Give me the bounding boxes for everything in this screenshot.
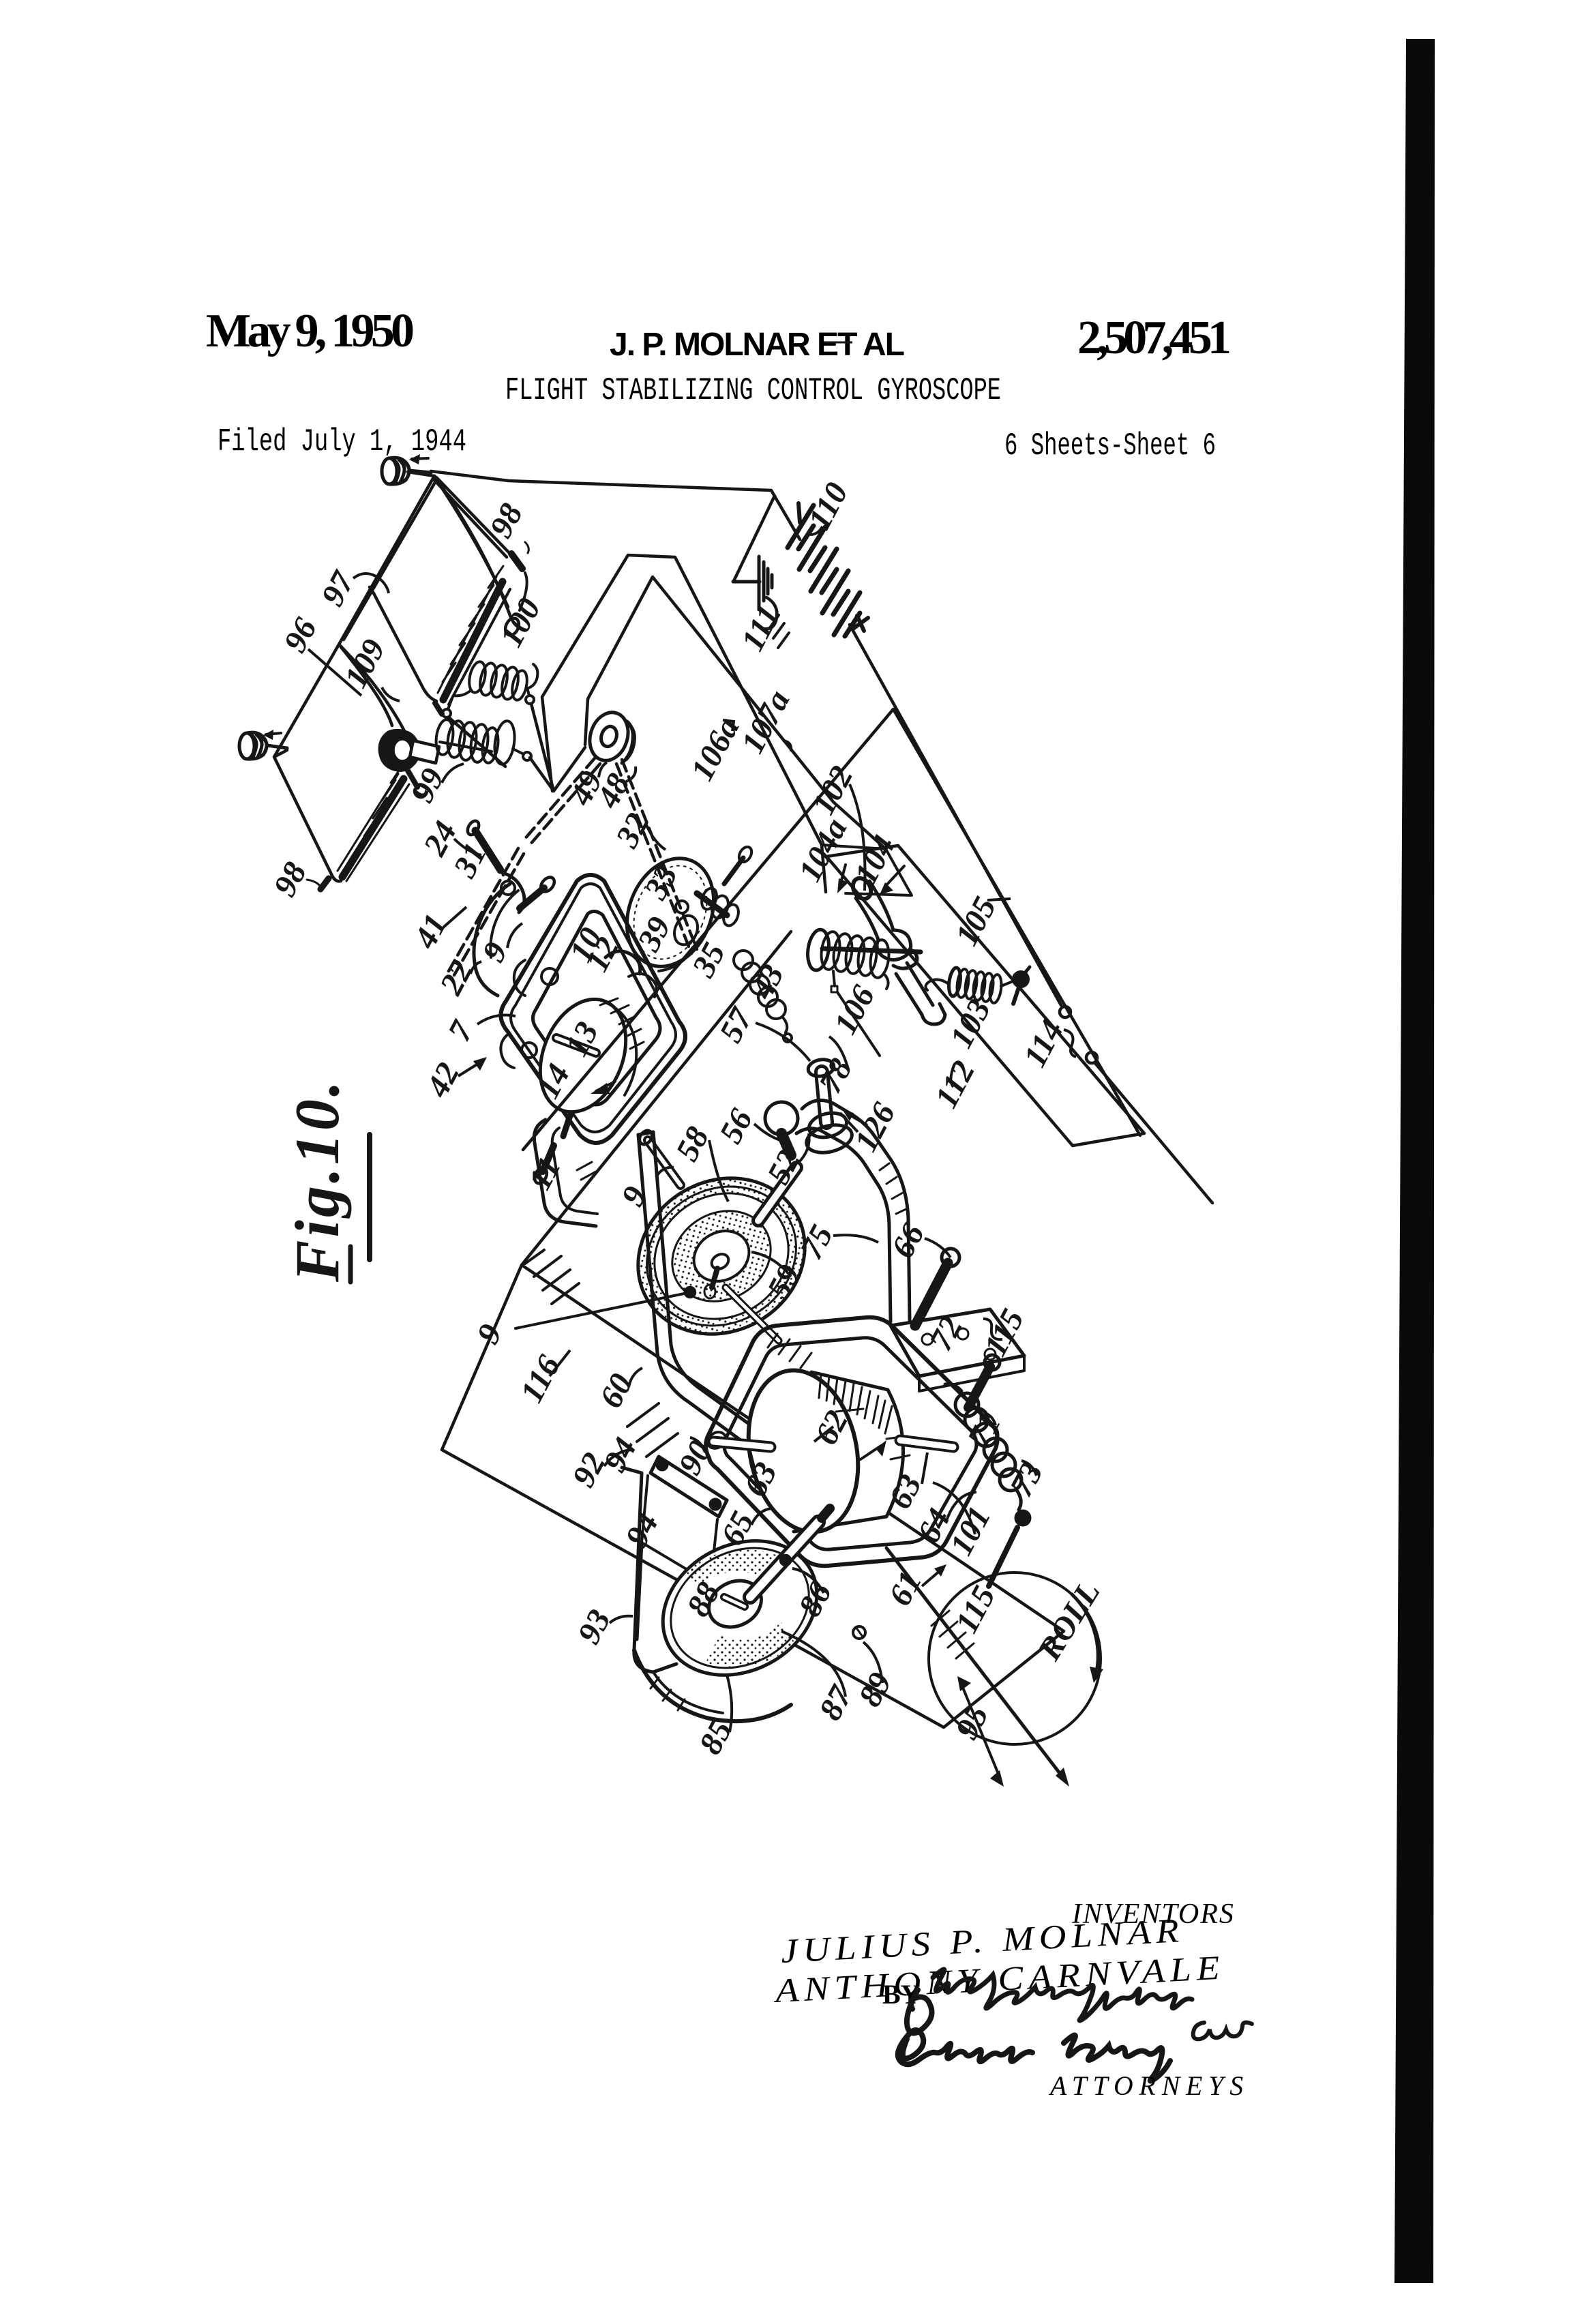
svg-text:2,507,451: 2,507,451 — [1077, 312, 1232, 364]
svg-text:May 9, 1950: May 9, 1950 — [206, 305, 415, 357]
svg-text:FLIGHT STABILIZING CONTROL GYR: FLIGHT STABILIZING CONTROL GYROSCOPE — [505, 373, 1001, 408]
svg-text:6 Sheets-Sheet 6: 6 Sheets-Sheet 6 — [1004, 428, 1216, 464]
svg-text:Fig.10.: Fig.10. — [282, 1078, 352, 1283]
svg-text:J. P. MOLNAR ET AL: J. P. MOLNAR ET AL — [610, 327, 905, 363]
svg-text:Filed July 1, 1944: Filed July 1, 1944 — [218, 424, 466, 460]
svg-text:ATTORNEYS: ATTORNEYS — [1048, 2070, 1249, 2101]
